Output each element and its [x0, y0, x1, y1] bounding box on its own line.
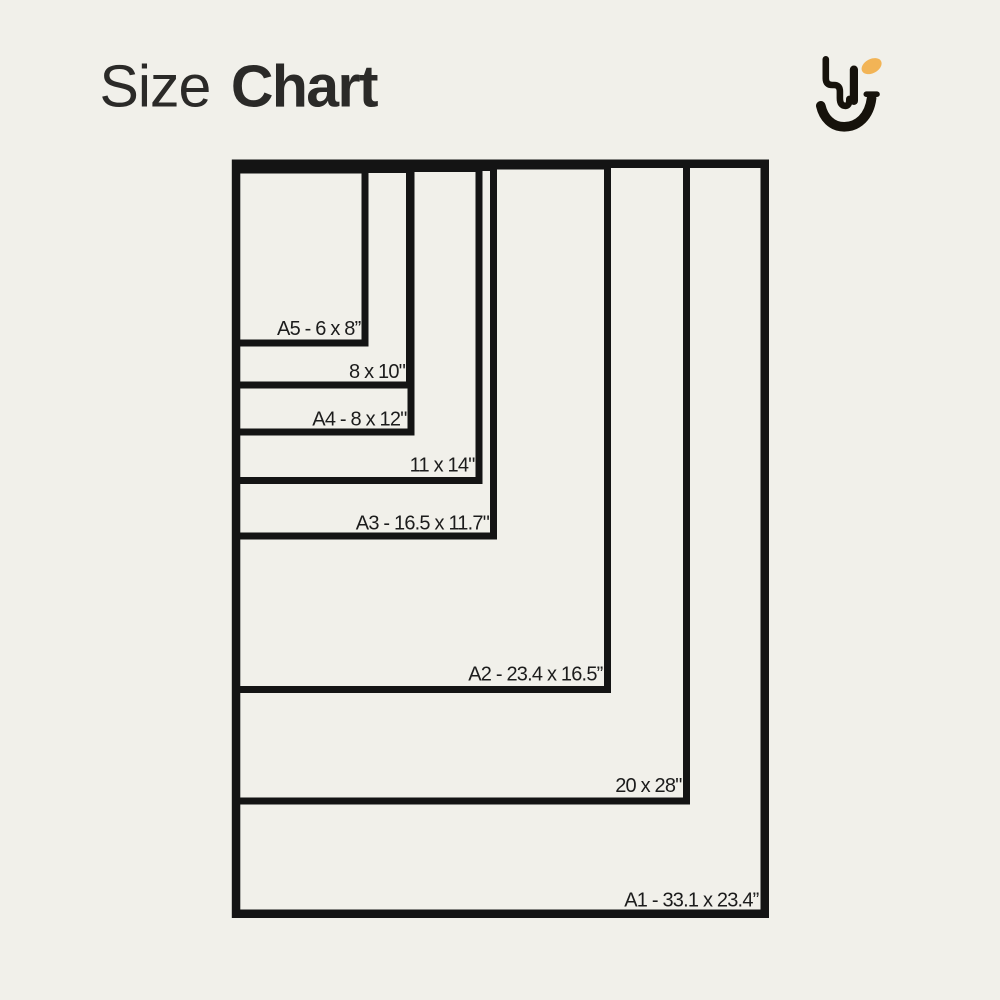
svg-text:11 x 14": 11 x 14"	[410, 455, 476, 477]
svg-text:8 x 10": 8 x 10"	[349, 361, 406, 383]
svg-text:A2 - 23.4 x 16.5”: A2 - 23.4 x 16.5”	[468, 664, 602, 686]
svg-text:A4 - 8 x 12": A4 - 8 x 12"	[312, 409, 407, 431]
svg-text:A5 - 6 x 8”: A5 - 6 x 8”	[277, 318, 361, 340]
svg-text:20 x 28": 20 x 28"	[615, 775, 682, 797]
svg-text:Size Chart: Size Chart	[100, 54, 378, 120]
svg-text:A1 - 33.1 x 23.4”: A1 - 33.1 x 23.4”	[624, 890, 758, 912]
svg-text:A3 - 16.5 x 11.7": A3 - 16.5 x 11.7"	[356, 513, 490, 535]
